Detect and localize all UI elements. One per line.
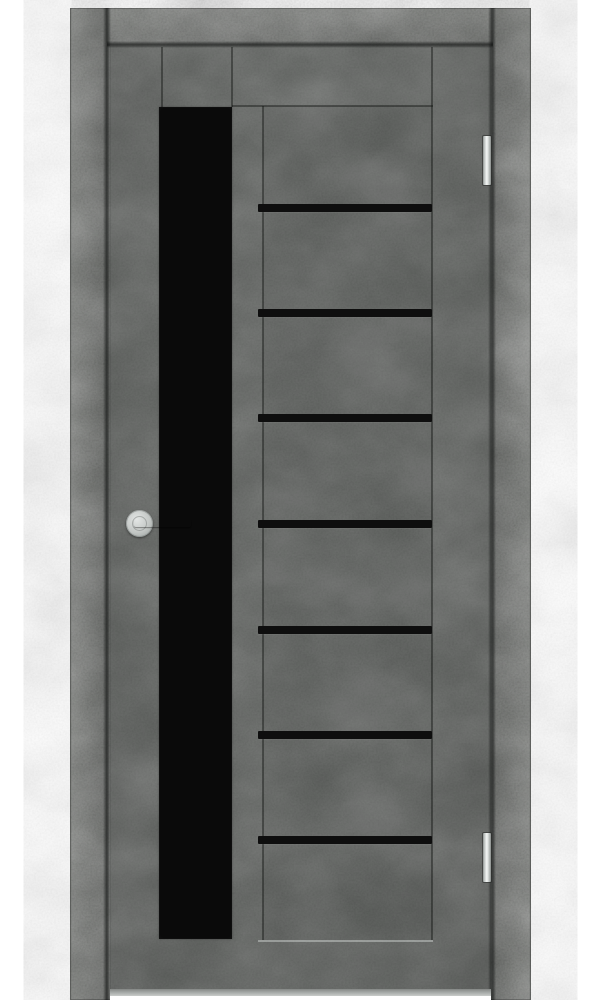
glass-strip xyxy=(258,836,432,844)
door-product-photo xyxy=(0,0,600,1000)
door-hinge-top xyxy=(483,136,491,185)
glass-strip xyxy=(258,731,432,739)
glass-strip xyxy=(258,520,432,528)
glass-strip xyxy=(258,414,432,422)
glass-strip xyxy=(258,204,432,212)
door-handle xyxy=(124,508,194,540)
door-hinge-bottom xyxy=(483,833,491,882)
handle-lever xyxy=(134,519,191,527)
glass-strip xyxy=(258,626,432,634)
slab-bottom-edge xyxy=(110,989,491,996)
threshold-gap xyxy=(110,996,491,1000)
glass-strips xyxy=(0,0,600,1000)
glass-strip xyxy=(258,309,432,317)
